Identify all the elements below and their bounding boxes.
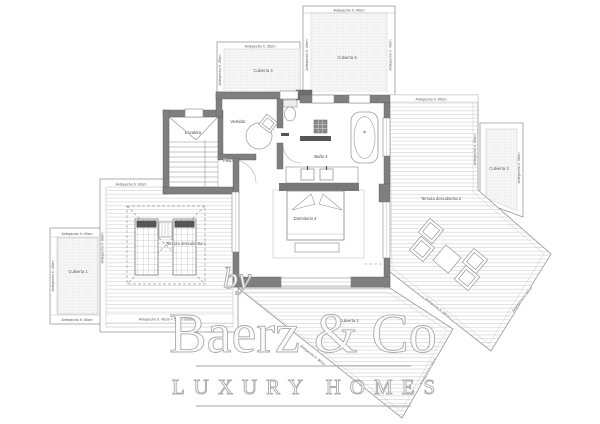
wall-bath-left-2	[277, 143, 283, 169]
watermark-by: by	[223, 262, 252, 295]
toilet-bowl	[285, 107, 296, 121]
side-table	[159, 222, 172, 237]
escalera-label: Escalera	[185, 130, 202, 135]
wall-right-1	[384, 103, 390, 118]
terraza-1-label: Terraza descubierta 1	[166, 241, 207, 246]
wall-bedroom-left-top	[233, 158, 239, 194]
cubierta-5-label: Cubierta 5	[337, 55, 357, 60]
sun-lounger-2-pillow	[175, 221, 195, 228]
cubierta4-antepecho-top: Antepecho h: 35cm	[245, 45, 276, 49]
window-bath-2	[349, 95, 370, 103]
cubierta-4-label: Cubierta 4	[253, 68, 273, 73]
shower-bench	[300, 136, 331, 141]
vestidor-label: Vestidor	[230, 119, 246, 124]
wall-stair-bottom	[163, 187, 233, 194]
cubierta3-antepecho-right: Antepecho h: 35cm	[517, 153, 521, 184]
shower-drain	[314, 120, 327, 133]
watermark-brand: Baerz & Co	[169, 303, 436, 365]
watermark-tagline: LUXURY HOMES	[172, 375, 444, 399]
cubierta-1-label: Cubierta 1	[68, 269, 88, 274]
paso-label: Paso	[223, 158, 233, 163]
cubierta-1-fill	[58, 238, 98, 314]
wall-right-corner	[379, 184, 390, 202]
cubierta4-antepecho-left: Antepecho h: 35cm	[218, 55, 222, 86]
window-top-b	[280, 91, 298, 99]
bed-bench	[295, 243, 339, 252]
bathtub-drain	[363, 131, 365, 133]
bano-4-label: Baño 4	[314, 154, 328, 159]
terraza-2-label: Terraza descubierta 2	[421, 196, 462, 201]
wall-bath-left-1	[277, 99, 283, 128]
wall-stair-right	[218, 117, 223, 159]
floor-plan-page: Antepecho h: 40cm Antepecho h: 40cm Ante…	[0, 0, 600, 424]
shower-head	[281, 133, 289, 136]
dormitorio-4-label: Dormitorio 4	[294, 216, 317, 221]
cubierta1-antepecho-bottom: Antepecho h: 40cm	[62, 318, 93, 322]
floor-plan-drawing: Antepecho h: 40cm Antepecho h: 40cm Ante…	[0, 0, 600, 424]
sink-1	[301, 169, 314, 180]
toilet-tank	[283, 100, 297, 107]
bathtub	[351, 112, 378, 163]
cubierta1-antepecho-top: Antepecho h: 40cm	[62, 232, 93, 236]
cubierta5-antepecho-right: Antepecho h: 40cm	[389, 40, 393, 71]
cubierta5-antepecho-left: Antepecho h: 40cm	[305, 40, 309, 71]
cubierta-5-roof: Antepecho h: 40cm Antepecho h: 40cm Ante…	[303, 6, 395, 98]
cubierta1-antepecho-left: Antepecho h: 40cm	[51, 261, 55, 292]
window-stair	[185, 109, 203, 117]
window-bath-1	[312, 95, 334, 103]
wall-stair-left	[163, 110, 169, 194]
terraza1-antepecho-top: Antepecho h: 90cm	[116, 183, 147, 187]
cubierta-1-roof: Antepecho h: 40cm Antepecho h: 40cm Ante…	[50, 228, 103, 324]
terraza2-antepecho-right: Antepecho h: 90cm	[473, 135, 477, 166]
cubierta5-antepecho-top: Antepecho h: 40cm	[334, 9, 365, 13]
cubierta-3-label: Cubierta 3	[489, 166, 509, 171]
terraza2-antepecho-top: Antepecho h: 90cm	[416, 98, 447, 102]
terraza1-antepecho-left: Antepecho h: 90cm	[101, 233, 105, 264]
sun-lounger-1-pillow	[137, 221, 157, 228]
wall-bedroom-bottom-right	[351, 277, 390, 287]
wall-right-2	[384, 156, 390, 184]
cubierta-4-roof: Antepecho h: 35cm Antepecho h: 35cm Cubi…	[217, 42, 300, 92]
headboard-wall	[279, 183, 359, 191]
sink-2	[320, 169, 333, 180]
